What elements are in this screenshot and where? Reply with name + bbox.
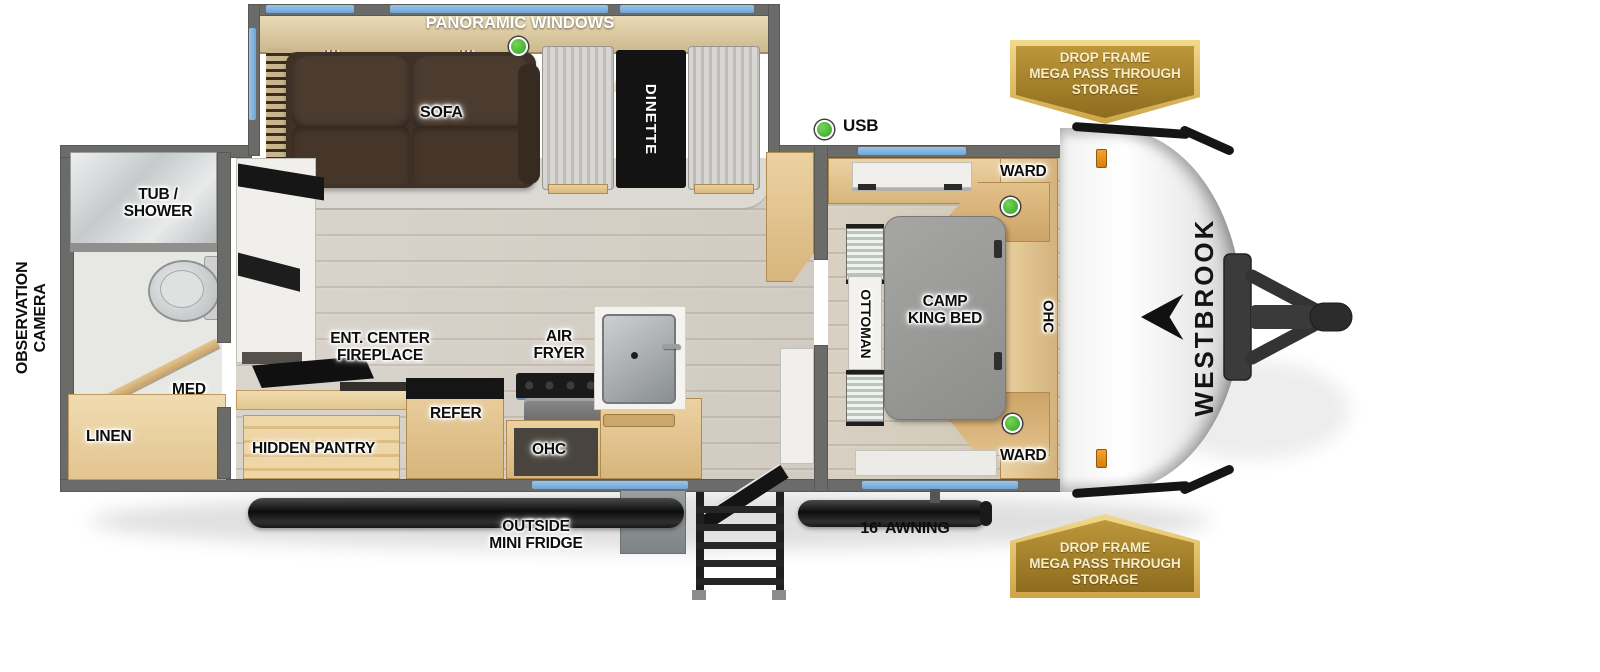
ottoman-cushion-top (846, 224, 884, 284)
slideout-window-2 (390, 5, 608, 13)
ottoman-cushion-bottom (846, 370, 884, 426)
sofa-label: SOFA (420, 104, 463, 122)
step-rung-1 (696, 506, 784, 513)
brand-mark: WESTBROOK (1138, 187, 1222, 447)
ent-center-label: ENT. CENTER FIREPLACE (325, 330, 435, 365)
step-rung-4 (696, 560, 784, 567)
usb-indicator (815, 120, 834, 139)
westbrook-dart-icon (1141, 291, 1185, 343)
bedroom-partition-lower (814, 345, 828, 492)
bed-handle-2 (994, 352, 1002, 370)
shelf-bracket-2 (944, 184, 962, 190)
tub-shower-label: TUB / SHOWER (110, 186, 206, 221)
bedroom-ohc-label: OHC (1039, 291, 1056, 341)
tongue-hitch (1222, 246, 1354, 388)
usb-label: USB (843, 116, 878, 135)
sink-drain (631, 352, 638, 359)
brand-name: WESTBROOK (1189, 218, 1220, 417)
outside-mini-fridge-label: OUTSIDE MINI FRIDGE (471, 518, 601, 553)
toilet-lid (160, 270, 204, 308)
awning-tube-rear (248, 498, 684, 528)
step-rung-5 (696, 578, 784, 585)
step-rung-3 (696, 542, 784, 549)
badge-text: DROP FRAME MEGA PASS THROUGH STORAGE (1010, 514, 1200, 598)
cooktop (516, 373, 604, 400)
sink-faucet (662, 344, 680, 349)
sofa-seat-cushion-right (412, 126, 530, 186)
shelf-bracket-1 (858, 184, 876, 190)
badge-text: DROP FRAME MEGA PASS THROUGH STORAGE (1010, 40, 1200, 124)
sofa-back-cushion-left (292, 56, 410, 132)
bathroom-wall-upper (217, 152, 231, 343)
step-foot-right (772, 590, 786, 600)
kitchen-ohc-label: OHC (532, 441, 566, 458)
ent-center-counter (236, 390, 418, 410)
observation-camera-label: OBSERVATION CAMERA (14, 168, 50, 468)
hidden-pantry-label: HIDDEN PANTRY (252, 440, 375, 457)
dinette-side-cabinet (766, 152, 814, 282)
dinette-label: DINETTE (643, 83, 660, 154)
awning-bracket (930, 489, 940, 503)
slideout-side-window (249, 28, 256, 120)
linen-label: LINEN (86, 428, 132, 445)
cutting-board (603, 414, 675, 427)
slideout-window-3 (620, 5, 754, 13)
wardrobe-top-label: WARD (1000, 163, 1047, 180)
kitchen-counter-right (600, 398, 702, 479)
panoramic-windows-indicator (509, 37, 528, 56)
step-foot-left (692, 590, 706, 600)
wardrobe-top-indicator (1001, 197, 1020, 216)
kitchen-window-bottom (532, 481, 688, 489)
bathroom-wall-lower (217, 407, 231, 479)
awning-label: 16' AWNING (845, 520, 965, 538)
slideout-window-1 (266, 5, 354, 13)
camp-king-bed-label: CAMP KING BED (900, 293, 990, 328)
cap-edge-bottom-2 (1179, 464, 1236, 496)
sink-basin (602, 314, 676, 404)
wardrobe-bottom-indicator (1003, 414, 1022, 433)
awning-end-cap (980, 501, 992, 526)
dinette-bench-right (688, 46, 760, 190)
storage-badge-bottom: DROP FRAME MEGA PASS THROUGH STORAGE (1010, 514, 1200, 598)
bed-handle-1 (994, 240, 1002, 258)
wardrobe-bottom-label: WARD (1000, 447, 1047, 464)
dinette-bench-base-left (548, 184, 608, 194)
dinette-bench-left (542, 46, 614, 190)
ottoman-label: OTTOMAN (857, 289, 873, 359)
cap-edge-top-2 (1179, 125, 1236, 157)
bed-foot-bench (855, 450, 997, 476)
slideout-right-wall (768, 4, 780, 156)
step-rung-2 (696, 524, 784, 531)
air-fryer-label: AIR FRYER (528, 328, 590, 363)
panoramic-windows-label: PANORAMIC WINDOWS (425, 14, 615, 33)
refrigerator-top (406, 378, 504, 399)
storage-badge-top: DROP FRAME MEGA PASS THROUGH STORAGE (1010, 40, 1200, 124)
marker-light-bottom (1096, 449, 1107, 468)
bedroom-window-top (858, 147, 966, 155)
bedroom-window-bottom (862, 481, 1018, 489)
bedroom-partition-upper (814, 145, 828, 260)
floorplan-canvas: SOFA DINETTE PANORAMIC WINDOWS TUB / SHO… (0, 0, 1600, 672)
entry-side-partition (780, 348, 814, 464)
dinette-bench-base-right (694, 184, 754, 194)
marker-light-top (1096, 149, 1107, 168)
tub-rim (70, 243, 217, 252)
sofa-armrest-right (518, 64, 540, 184)
dinette-table: DINETTE (616, 50, 686, 188)
refer-label: REFER (430, 405, 482, 422)
